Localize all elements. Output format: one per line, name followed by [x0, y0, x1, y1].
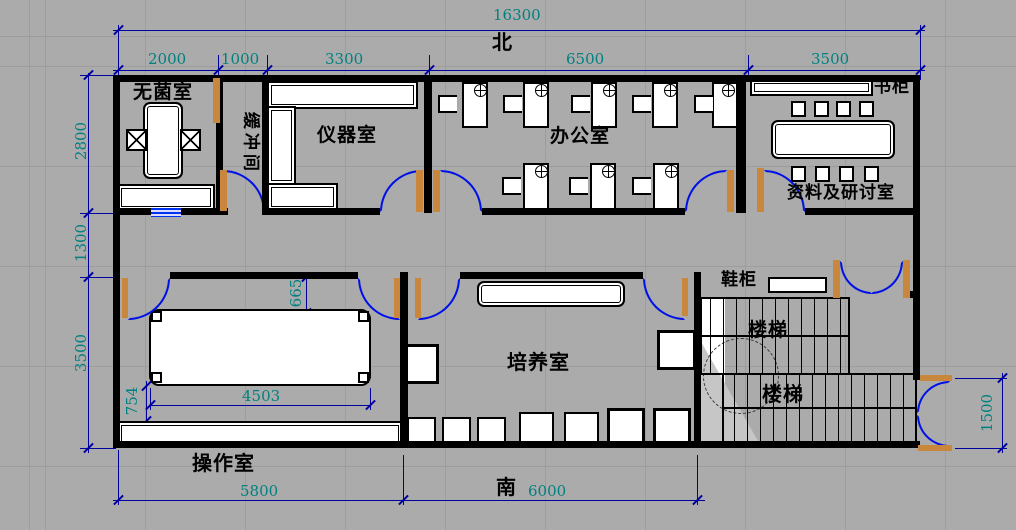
- door-leaf-vestibule-right: [903, 260, 910, 298]
- seminar-chair: [791, 166, 806, 182]
- dim-clearance-665: 665: [287, 274, 305, 312]
- instrument-counter-corner: [267, 183, 338, 211]
- office-monitor-icon: [535, 84, 548, 97]
- office-chair: [438, 95, 457, 113]
- office-chair: [694, 95, 713, 113]
- culture-incubator: [407, 417, 436, 444]
- door-leaf-sterile-south: [220, 170, 227, 211]
- sterile-equipment-right: [180, 129, 201, 151]
- seminar-chair: [839, 166, 854, 182]
- wall-office-archive: [736, 82, 746, 213]
- office-chair: [632, 95, 651, 113]
- culture-incubator: [653, 408, 691, 445]
- dimension-line-table-width: [150, 405, 370, 406]
- room-label-office: 办公室: [550, 126, 610, 147]
- dim-table-4503: 4503: [242, 387, 280, 405]
- dim-left-2800: 2800: [72, 117, 90, 165]
- room-label-operation: 操作室: [192, 452, 255, 474]
- dim-bottom-6000: 6000: [528, 482, 566, 500]
- operation-table-corner: [358, 372, 369, 383]
- bookcase-label: 书柜: [874, 78, 910, 97]
- sterile-room-vent: [151, 208, 181, 217]
- seminar-chair: [791, 101, 806, 117]
- culture-incubator: [442, 417, 471, 444]
- office-monitor-icon: [474, 84, 487, 97]
- door-leaf-archive: [757, 168, 764, 212]
- office-monitor-icon: [722, 84, 735, 97]
- door-leaf-instrument: [416, 170, 423, 212]
- culture-incubator: [477, 417, 506, 444]
- office-monitor-icon: [535, 165, 548, 178]
- shoe-cabinet-label: 鞋柜: [721, 271, 757, 290]
- instrument-counter-top: [267, 81, 418, 109]
- room-label-instrument: 仪器室: [317, 125, 377, 146]
- office-chair: [569, 177, 588, 195]
- culture-incubator: [607, 408, 645, 445]
- office-monitor-icon: [602, 165, 615, 178]
- operation-table-corner: [151, 372, 162, 383]
- dimension-line-door-clearance: [306, 274, 307, 314]
- door-leaf-culture-right: [682, 278, 688, 316]
- office-monitor-icon: [603, 84, 616, 97]
- door-leaf-operation-left: [122, 278, 128, 318]
- room-label-culture: 培养室: [507, 351, 570, 373]
- wall-operation-culture: [400, 272, 408, 448]
- stairs-lower-rail: [722, 407, 917, 409]
- sterile-room-counter: [117, 184, 215, 211]
- office-chair: [502, 177, 521, 195]
- dim-top-2000: 2000: [148, 50, 186, 68]
- sterile-equipment-left: [126, 129, 147, 151]
- dim-overall-width: 16300: [493, 6, 541, 24]
- dimension-line-top-segments: [113, 70, 925, 71]
- door-leaf-entrance-bottom: [918, 445, 952, 451]
- dim-bottom-5800: 5800: [240, 482, 278, 500]
- wall-exterior-left: [113, 75, 120, 448]
- dim-left-3500: 3500: [72, 329, 90, 377]
- door-leaf-office-right: [727, 170, 734, 212]
- dimension-line-entrance: [1002, 373, 1003, 453]
- sterile-room-table: [143, 102, 183, 179]
- door-leaf-culture-left: [415, 278, 421, 318]
- operation-table-corner: [151, 311, 162, 322]
- dim-left-1300: 1300: [72, 219, 90, 267]
- shoe-cabinet: [768, 277, 827, 293]
- office-chair: [571, 95, 590, 113]
- wall-culture-stairs: [694, 272, 701, 448]
- door-leaf-operation-right: [394, 278, 400, 318]
- operation-table: [149, 309, 371, 386]
- dim-top-1000: 1000: [221, 50, 259, 68]
- seminar-chair: [815, 166, 830, 182]
- room-label-archive: 资料及研讨室: [787, 184, 895, 203]
- wall-exterior-bottom: [113, 441, 920, 448]
- wall-corridor-north-3: [482, 208, 685, 215]
- wall-corridor-north-4: [805, 208, 920, 215]
- door-leaf-entrance-top: [920, 375, 952, 381]
- wall-buffer-instrument: [262, 75, 269, 213]
- room-label-sterile: 无菌室: [133, 82, 193, 103]
- room-label-buffer: 缓冲间: [241, 107, 260, 179]
- wall-culture-north: [460, 272, 643, 279]
- dim-clearance-754: 754: [123, 382, 141, 420]
- compass-north: 北: [492, 31, 513, 53]
- wall-corridor-north-2: [262, 208, 380, 215]
- door-leaf-office-left: [433, 170, 440, 212]
- instrument-counter-left: [267, 106, 296, 185]
- seminar-chair: [836, 101, 851, 117]
- dim-top-6500: 6500: [566, 50, 604, 68]
- compass-south: 南: [496, 476, 517, 498]
- dimension-line-overall-top: [113, 30, 925, 31]
- room-label-stairs-upper: 楼梯: [748, 320, 788, 341]
- dim-entrance-1500: 1500: [978, 389, 996, 437]
- seminar-chair: [814, 101, 829, 117]
- wall-instrument-office: [424, 82, 432, 213]
- seminar-chair: [864, 166, 879, 182]
- room-label-stairs-lower: 楼梯: [762, 383, 804, 405]
- door-leaf-sterile-north: [213, 78, 220, 123]
- culture-table: [477, 281, 625, 307]
- wall-exterior-right: [913, 75, 920, 380]
- wall-exterior-top: [113, 75, 920, 82]
- culture-incubator: [564, 412, 599, 444]
- culture-incubator: [519, 412, 554, 444]
- door-leaf-vestibule-left: [833, 260, 840, 298]
- wall-operation-north: [170, 272, 358, 279]
- floor-plan-canvas: 16300 2000 1000 3300 6500 3500 2800 1300…: [0, 0, 1016, 530]
- seminar-table: [771, 120, 895, 159]
- dimension-line-bottom: [113, 500, 705, 501]
- office-chair: [632, 177, 651, 195]
- dim-top-3300: 3300: [325, 50, 363, 68]
- seminar-chair: [859, 101, 874, 117]
- office-monitor-icon: [664, 84, 677, 97]
- operation-table-corner: [358, 311, 369, 322]
- office-chair: [503, 95, 522, 113]
- culture-equipment: [657, 330, 696, 370]
- office-monitor-icon: [665, 165, 678, 178]
- dim-top-3500: 3500: [811, 50, 849, 68]
